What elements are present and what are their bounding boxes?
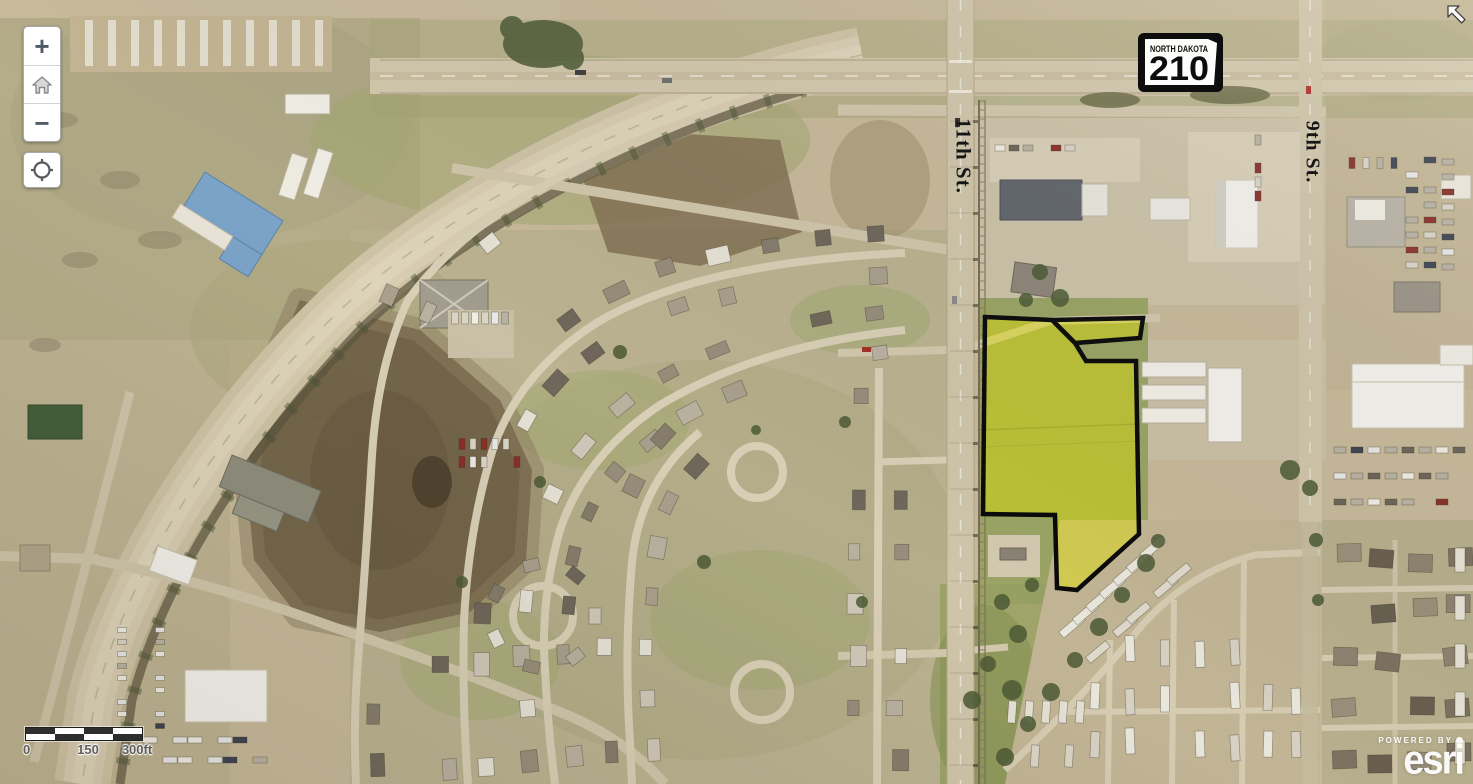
home-button[interactable] [24, 65, 60, 103]
map-viewport: + − NORTH DAKOTA 210 11th St. 9th St. [0, 0, 1473, 784]
shield-route-number: 210 [1149, 50, 1209, 88]
street-label-9th: 9th St. [1301, 121, 1324, 184]
street-label-11th: 11th St. [951, 118, 976, 194]
scale-bar-checker [25, 727, 143, 741]
esri-logo: esri [1403, 742, 1463, 779]
locate-button[interactable] [23, 152, 61, 188]
zoom-in-button[interactable]: + [24, 27, 60, 65]
zoom-control: + − [23, 26, 61, 142]
esri-attribution[interactable]: POWERED BY esri [1378, 736, 1463, 779]
collapse-arrow-icon[interactable] [1445, 3, 1469, 27]
zoom-out-button[interactable]: − [24, 103, 60, 141]
locate-icon [30, 158, 54, 182]
aerial-basemap[interactable] [0, 0, 1473, 784]
home-icon [31, 75, 53, 95]
scale-label-zero: 0 [23, 742, 30, 757]
scale-bar: 0 150 300ft [25, 727, 143, 741]
scale-label-mid: 150 [77, 742, 99, 757]
photo-sheen [0, 0, 1473, 784]
highway-shield-nd210: NORTH DAKOTA 210 [1138, 33, 1223, 92]
scale-label-end: 300ft [122, 742, 152, 757]
